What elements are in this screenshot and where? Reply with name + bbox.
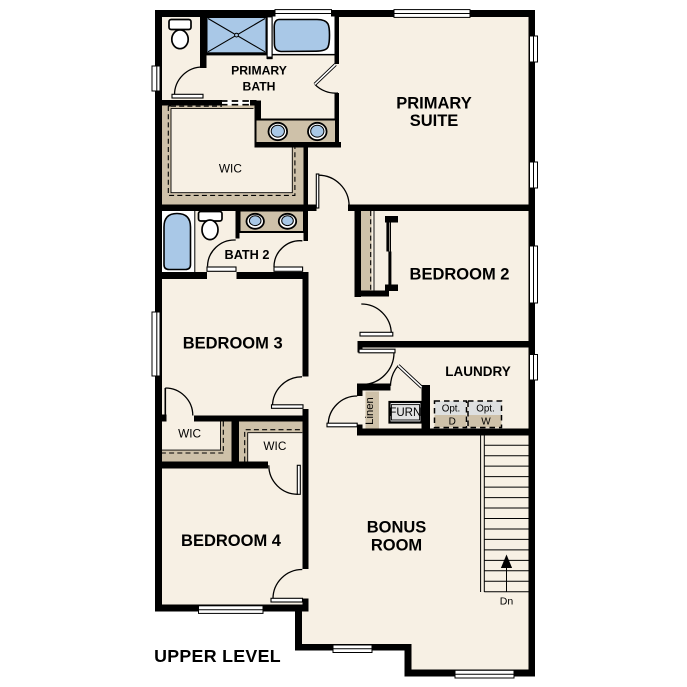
svg-text:BATH 2: BATH 2: [225, 248, 270, 262]
svg-text:D: D: [449, 416, 456, 427]
svg-text:WIC: WIC: [178, 426, 201, 440]
svg-text:ROOM: ROOM: [371, 536, 422, 554]
svg-text:PRIMARY: PRIMARY: [396, 94, 471, 112]
svg-text:BATH: BATH: [243, 79, 276, 93]
svg-text:FURN: FURN: [389, 407, 421, 419]
svg-text:Dn: Dn: [500, 595, 514, 607]
svg-text:SUITE: SUITE: [410, 112, 459, 130]
svg-text:UPPER LEVEL: UPPER LEVEL: [154, 646, 281, 666]
svg-text:WIC: WIC: [263, 439, 286, 453]
svg-text:LAUNDRY: LAUNDRY: [445, 364, 511, 379]
svg-text:BEDROOM 2: BEDROOM 2: [410, 265, 510, 283]
svg-text:BEDROOM 3: BEDROOM 3: [183, 335, 283, 353]
svg-text:Opt.: Opt.: [476, 404, 495, 415]
svg-text:Opt.: Opt.: [442, 404, 461, 415]
svg-text:WIC: WIC: [219, 161, 242, 175]
svg-text:W: W: [481, 416, 491, 427]
svg-text:PRIMARY: PRIMARY: [231, 63, 287, 77]
svg-text:BONUS: BONUS: [367, 518, 427, 536]
svg-text:BEDROOM 4: BEDROOM 4: [181, 532, 282, 550]
svg-text:Linen: Linen: [364, 397, 376, 425]
